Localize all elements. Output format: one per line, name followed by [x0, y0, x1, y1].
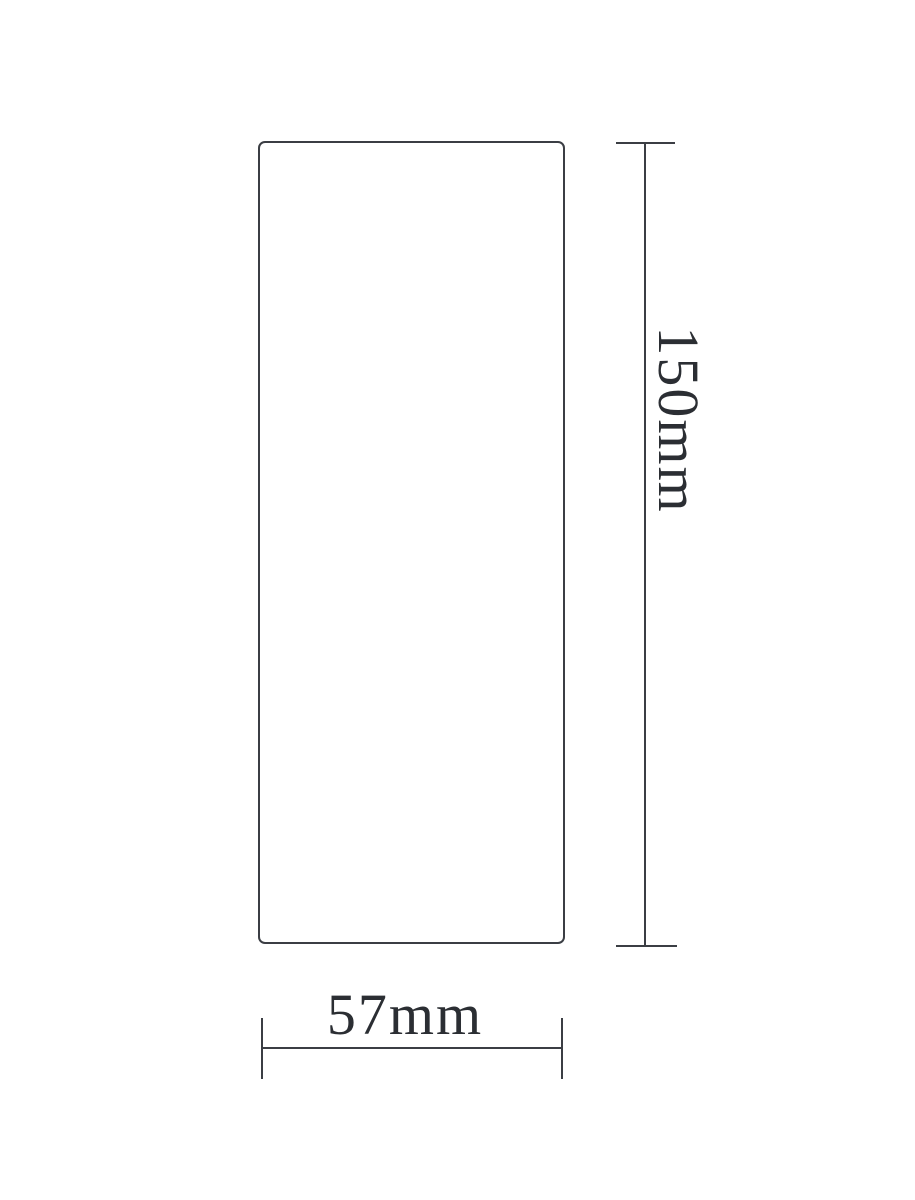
technical-drawing-canvas: 150mm 57mm [0, 0, 915, 1200]
width-dimension-tick-left [261, 1018, 263, 1079]
height-dimension-tick-top [616, 142, 675, 144]
height-dimension-label: 150mm [649, 325, 707, 515]
width-dimension-tick-right [561, 1018, 563, 1079]
part-outline-rectangle [258, 141, 565, 944]
height-dimension-tick-bottom [616, 945, 677, 947]
width-dimension-line [261, 1047, 563, 1049]
height-dimension-line [644, 142, 646, 947]
width-dimension-label: 57mm [320, 986, 490, 1044]
